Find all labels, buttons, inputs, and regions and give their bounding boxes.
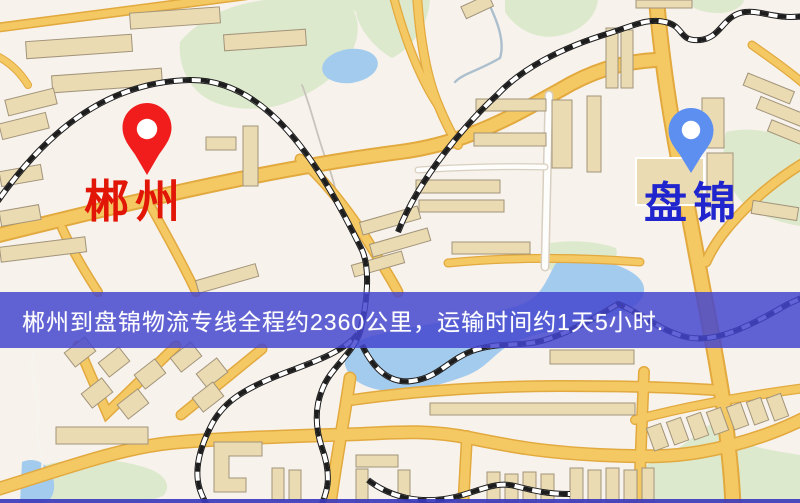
route-info-text: 郴州到盘锦物流专线全程约2360公里，运输时间约1天5小时. xyxy=(0,303,664,337)
origin-city-label: 郴州 xyxy=(84,179,186,224)
route-info-banner: 郴州到盘锦物流专线全程约2360公里，运输时间约1天5小时. xyxy=(0,292,800,348)
map-canvas xyxy=(0,0,800,503)
map-screenshot: 郴州 盘锦 郴州到盘锦物流专线全程约2360公里，运输时间约1天5小时. xyxy=(0,0,800,503)
bottom-edge-strip xyxy=(0,499,800,503)
destination-city-label: 盘锦 xyxy=(644,183,742,226)
